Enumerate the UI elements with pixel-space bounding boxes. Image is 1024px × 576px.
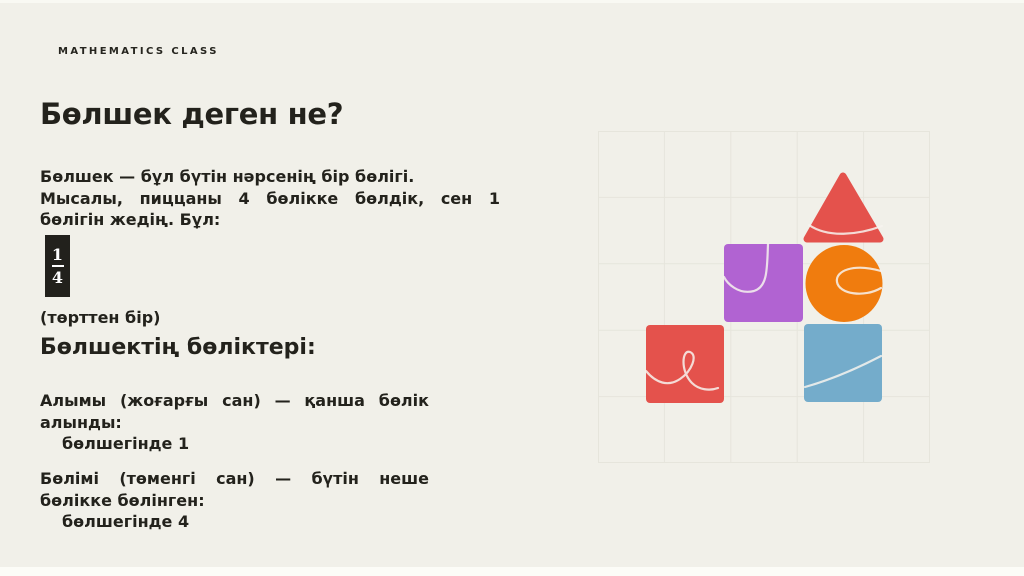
denominator-description: Бөлімі (төменгі сан) — бүтін неше бөлікк…	[40, 468, 429, 511]
fraction-caption: (төрттен бір)	[40, 307, 160, 329]
red-triangle-shape	[807, 176, 882, 239]
numerator-description: Алымы (жоғарғы сан) — қанша бөлік алынды…	[40, 390, 429, 433]
page-title: Бөлшек деген не?	[40, 96, 343, 132]
denominator-block: Бөлімі (төменгі сан) — бүтін неше бөлікк…	[40, 468, 429, 533]
denominator-example: бөлшегінде 4	[40, 511, 429, 533]
blue-square	[804, 324, 882, 402]
kicker: MATHEMATICS CLASS	[58, 46, 219, 57]
top-margin-strip	[0, 0, 1024, 3]
orange-circle	[806, 245, 883, 322]
fraction-numerator: 1	[52, 246, 63, 263]
blue-square-shape	[804, 324, 882, 402]
shapes-grid-graphic	[598, 131, 930, 463]
red-square-shape	[646, 325, 724, 403]
fraction-box: 1 4	[45, 235, 70, 297]
intro-line-2: Мысалы, пиццаны 4 бөлікке бөлдік, сен 1 …	[40, 189, 500, 230]
orange-circle-shape	[806, 245, 883, 322]
purple-square-shape	[724, 244, 803, 322]
slide: MATHEMATICS CLASS Бөлшек деген не? Бөлше…	[0, 0, 1024, 576]
parts-heading: Бөлшектің бөліктері:	[40, 334, 316, 362]
fraction-denominator: 4	[52, 269, 63, 286]
red-square	[646, 325, 724, 403]
bottom-margin-strip	[0, 567, 1024, 576]
intro-line-1: Бөлшек — бұл бүтін нәрсенің бір бөлігі.	[40, 167, 414, 186]
numerator-example: бөлшегінде 1	[40, 433, 429, 455]
intro-paragraph: Бөлшек — бұл бүтін нәрсенің бір бөлігі. …	[40, 166, 500, 231]
fraction-bar	[52, 265, 64, 267]
numerator-block: Алымы (жоғарғы сан) — қанша бөлік алынды…	[40, 390, 429, 455]
